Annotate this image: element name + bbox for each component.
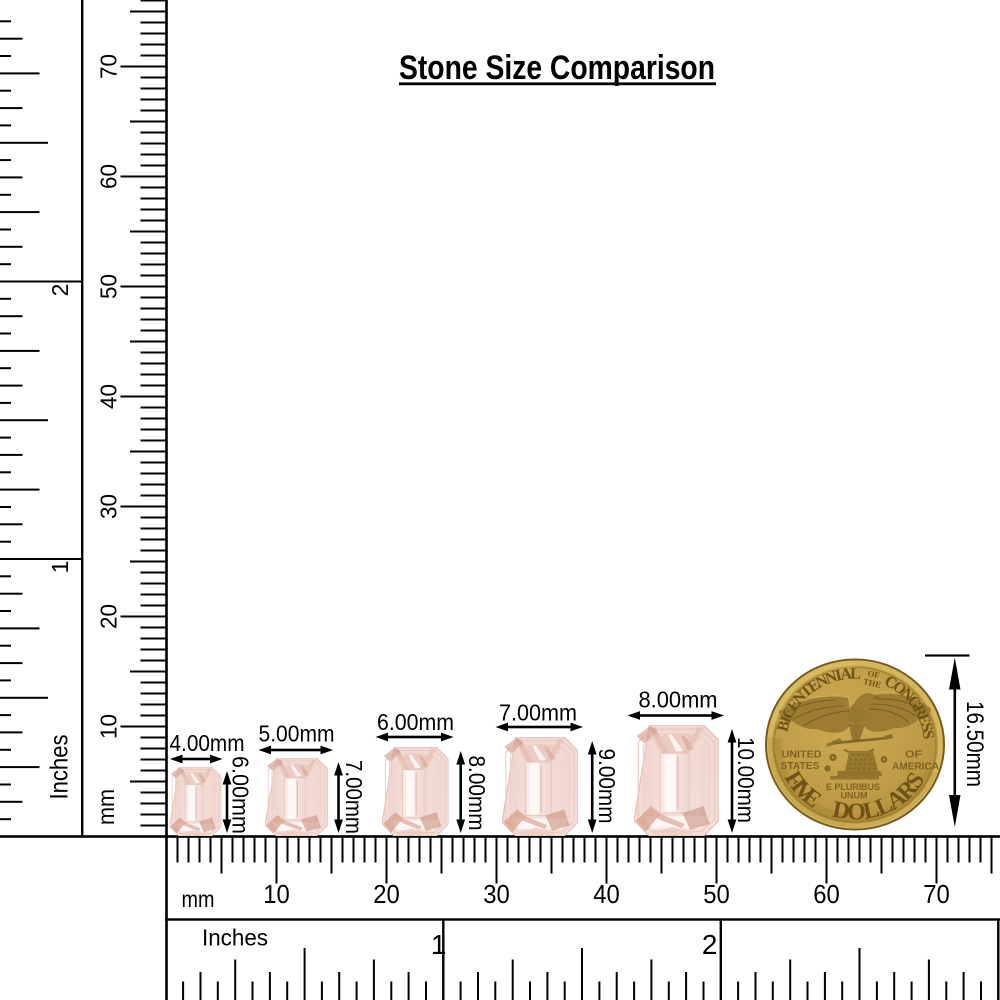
svg-text:60: 60 — [96, 164, 122, 189]
svg-text:6.00mm: 6.00mm — [227, 756, 253, 834]
svg-text:7.00mm: 7.00mm — [499, 700, 577, 726]
svg-text:4.00mm: 4.00mm — [170, 730, 245, 756]
svg-text:1: 1 — [431, 929, 447, 960]
svg-text:mm: mm — [93, 789, 119, 825]
svg-text:6.00mm: 6.00mm — [377, 709, 454, 735]
svg-text:5.00mm: 5.00mm — [259, 721, 335, 747]
svg-text:50: 50 — [703, 881, 730, 909]
svg-text:mm: mm — [182, 886, 215, 912]
svg-text:8.00mm: 8.00mm — [464, 756, 490, 831]
svg-text:L: L — [850, 666, 861, 683]
svg-text:1: 1 — [47, 561, 73, 574]
svg-text:30: 30 — [96, 494, 122, 519]
svg-text:OF: OF — [905, 750, 922, 761]
svg-text:16.50mm: 16.50mm — [961, 701, 988, 787]
svg-text:2: 2 — [47, 284, 73, 297]
svg-text:10: 10 — [96, 714, 122, 739]
svg-text:Stone Size Comparison: Stone Size Comparison — [399, 49, 715, 87]
svg-text:9.00mm: 9.00mm — [594, 749, 620, 824]
svg-text:10: 10 — [263, 881, 290, 909]
svg-text:60: 60 — [813, 881, 840, 909]
svg-text:30: 30 — [483, 881, 510, 909]
svg-text:40: 40 — [593, 881, 620, 909]
svg-text:20: 20 — [96, 604, 122, 629]
svg-text:2: 2 — [702, 929, 718, 960]
svg-text:STATES: STATES — [781, 761, 820, 772]
svg-text:Inches: Inches — [202, 925, 268, 951]
svg-text:UNITED: UNITED — [782, 750, 822, 761]
svg-text:7.00mm: 7.00mm — [341, 760, 367, 834]
svg-text:70: 70 — [923, 881, 950, 909]
svg-text:20: 20 — [373, 881, 400, 909]
svg-text:AMERICA: AMERICA — [892, 762, 940, 773]
svg-text:40: 40 — [96, 384, 122, 409]
svg-text:UNUM: UNUM — [841, 791, 868, 802]
svg-text:8.00mm: 8.00mm — [639, 687, 718, 713]
svg-text:50: 50 — [96, 274, 122, 299]
svg-text:70: 70 — [96, 54, 122, 79]
svg-text:Inches: Inches — [45, 735, 73, 800]
svg-text:10.00mm: 10.00mm — [733, 737, 759, 823]
